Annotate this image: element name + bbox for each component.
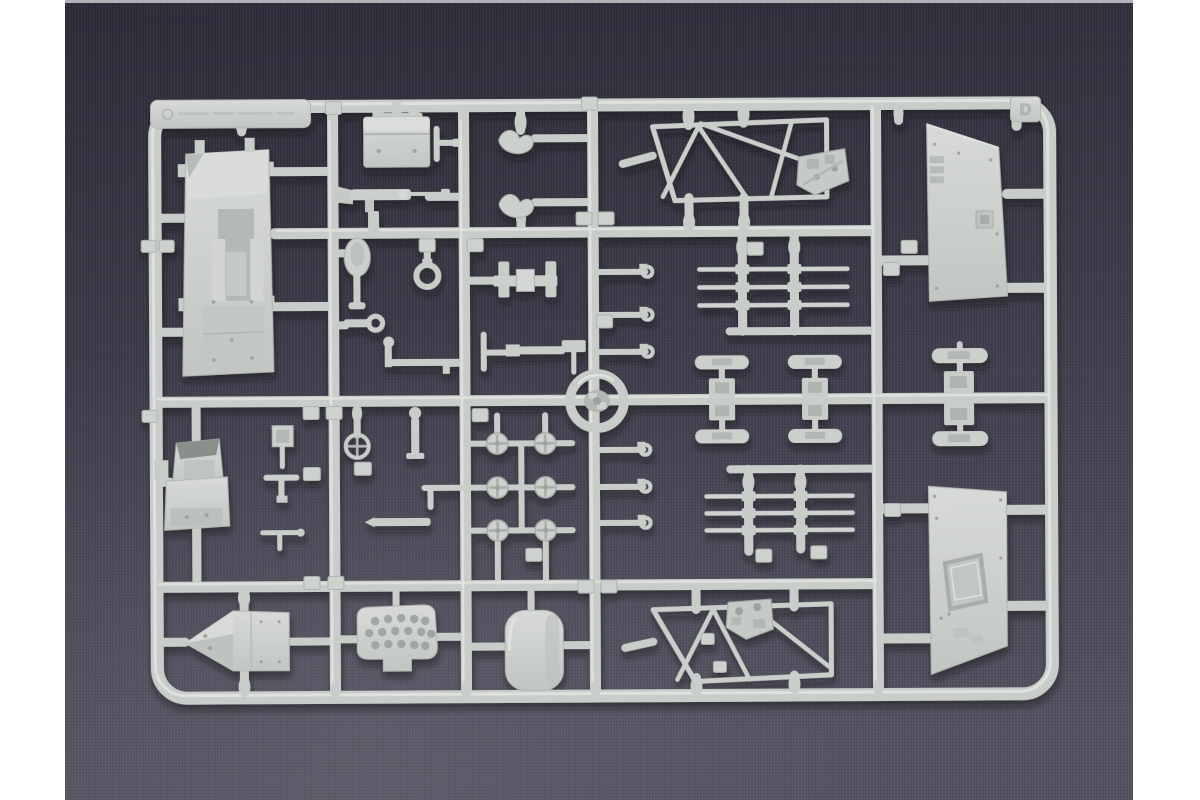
part-fuel-tank: [505, 610, 563, 690]
part-hull-side-panel-upper: [927, 124, 1008, 301]
photo-of-model-sprue: D: [0, 0, 1200, 800]
sprue-photo-svg: D: [0, 0, 1200, 800]
part-chassis-plate: [178, 138, 275, 376]
part-torsion-bar-set-upper: [699, 264, 847, 311]
part-torsion-bar-set-lower: [706, 491, 852, 536]
part-hull-side-panel-lower: [928, 486, 1007, 674]
maker-text-tab: [150, 100, 310, 129]
sprue-letter-plate: D: [1010, 97, 1040, 122]
sprue-letter: D: [1020, 102, 1032, 119]
